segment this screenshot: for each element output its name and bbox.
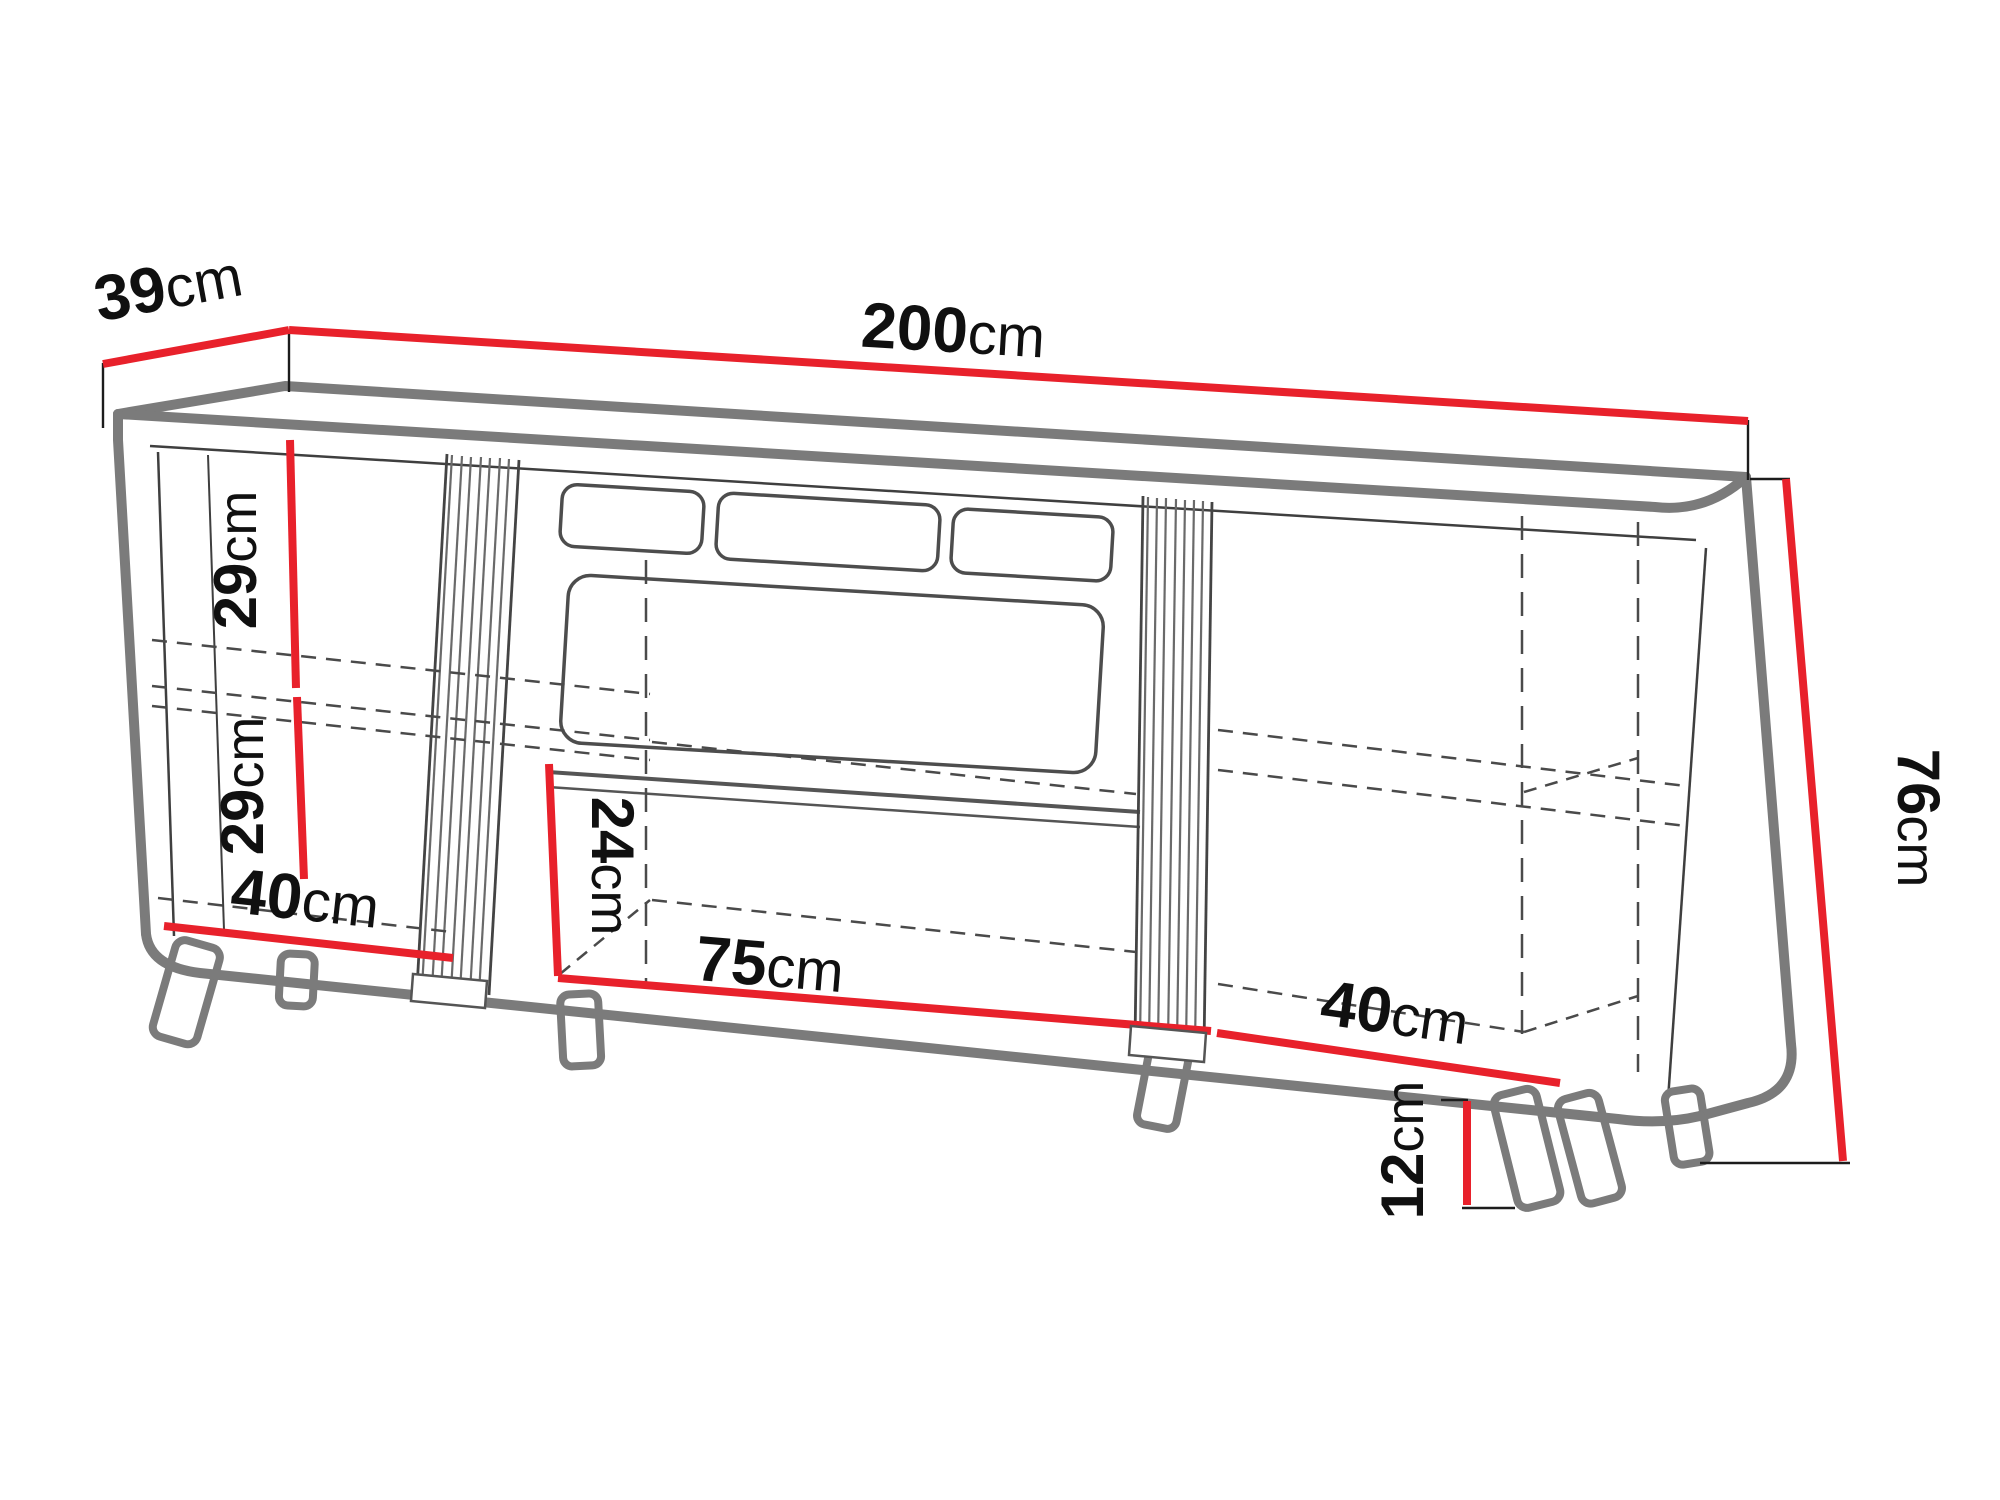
divider-base-right xyxy=(1129,1026,1206,1062)
label-12cm: 12cm xyxy=(1369,1081,1436,1220)
label-39cm: 39cm xyxy=(88,237,247,335)
label-29cm-upper: 29cm xyxy=(202,491,269,630)
label-29cm-lower: 29cm xyxy=(209,717,276,856)
label-24cm: 24cm xyxy=(579,797,646,936)
furniture-dimension-diagram: 39cm 200cm 29cm 29cm 40cm 24cm 75cm 40cm… xyxy=(0,0,2000,1500)
leg-back-right xyxy=(1664,1087,1711,1166)
leg-center-left xyxy=(560,993,602,1067)
dim-line-39 xyxy=(103,330,289,364)
label-76cm: 76cm xyxy=(1885,749,1952,888)
divider-base-left xyxy=(411,974,487,1008)
label-200cm: 200cm xyxy=(859,289,1047,372)
tv-stand-technical-drawing: 39cm 200cm 29cm 29cm 40cm 24cm 75cm 40cm… xyxy=(0,0,2000,1500)
